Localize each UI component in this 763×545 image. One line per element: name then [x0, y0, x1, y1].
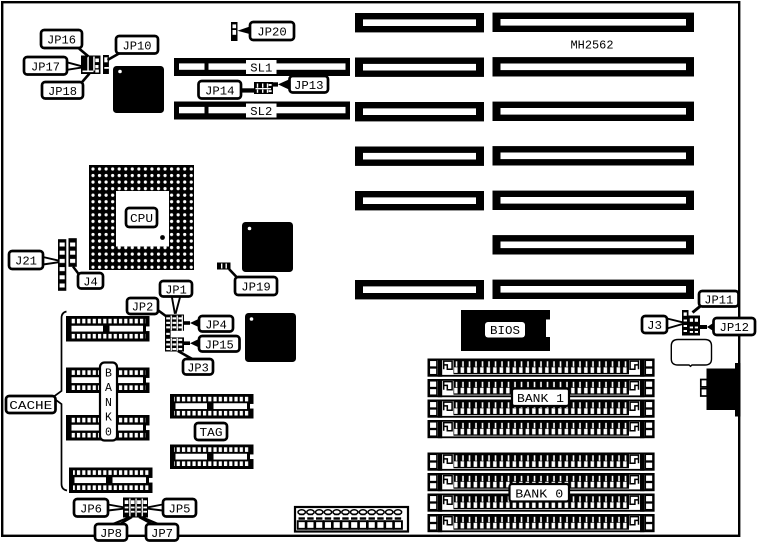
svg-text:J4: J4: [83, 275, 98, 289]
svg-text:N: N: [105, 397, 112, 410]
svg-text:JP4: JP4: [205, 318, 227, 332]
svg-text:0: 0: [105, 426, 112, 439]
svg-text:JP10: JP10: [123, 39, 152, 53]
svg-text:K: K: [105, 412, 112, 425]
svg-text:JP15: JP15: [205, 338, 234, 352]
svg-text:JP19: JP19: [241, 281, 271, 295]
svg-text:A: A: [105, 382, 112, 395]
svg-text:JP18: JP18: [48, 85, 77, 99]
svg-text:BANK 1: BANK 1: [517, 392, 564, 406]
svg-text:JP6: JP6: [80, 502, 102, 516]
svg-text:JP3: JP3: [187, 361, 209, 375]
svg-text:SL1: SL1: [250, 61, 272, 75]
svg-text:JP16: JP16: [47, 34, 76, 48]
svg-text:BANK 0: BANK 0: [515, 487, 563, 501]
svg-text:BIOS: BIOS: [490, 324, 520, 338]
svg-text:J3: J3: [647, 319, 662, 333]
svg-text:B: B: [105, 368, 112, 381]
svg-text:CPU: CPU: [130, 212, 153, 226]
svg-text:JP20: JP20: [257, 26, 287, 40]
svg-text:JP8: JP8: [100, 527, 122, 541]
svg-text:JP2: JP2: [132, 301, 154, 315]
svg-text:JP1: JP1: [165, 283, 187, 297]
svg-text:CACHE: CACHE: [9, 399, 52, 413]
svg-text:JP12: JP12: [720, 321, 750, 335]
svg-text:SL2: SL2: [250, 105, 272, 119]
svg-text:JP17: JP17: [31, 60, 60, 74]
svg-text:JP7: JP7: [151, 527, 173, 541]
svg-text:JP13: JP13: [294, 79, 324, 93]
svg-text:J21: J21: [15, 255, 37, 269]
svg-text:JP14: JP14: [205, 84, 235, 98]
svg-text:MH2562: MH2562: [571, 40, 614, 53]
svg-text:JP5: JP5: [169, 502, 191, 516]
svg-text:TAG: TAG: [200, 426, 223, 440]
svg-text:JP11: JP11: [704, 293, 733, 307]
